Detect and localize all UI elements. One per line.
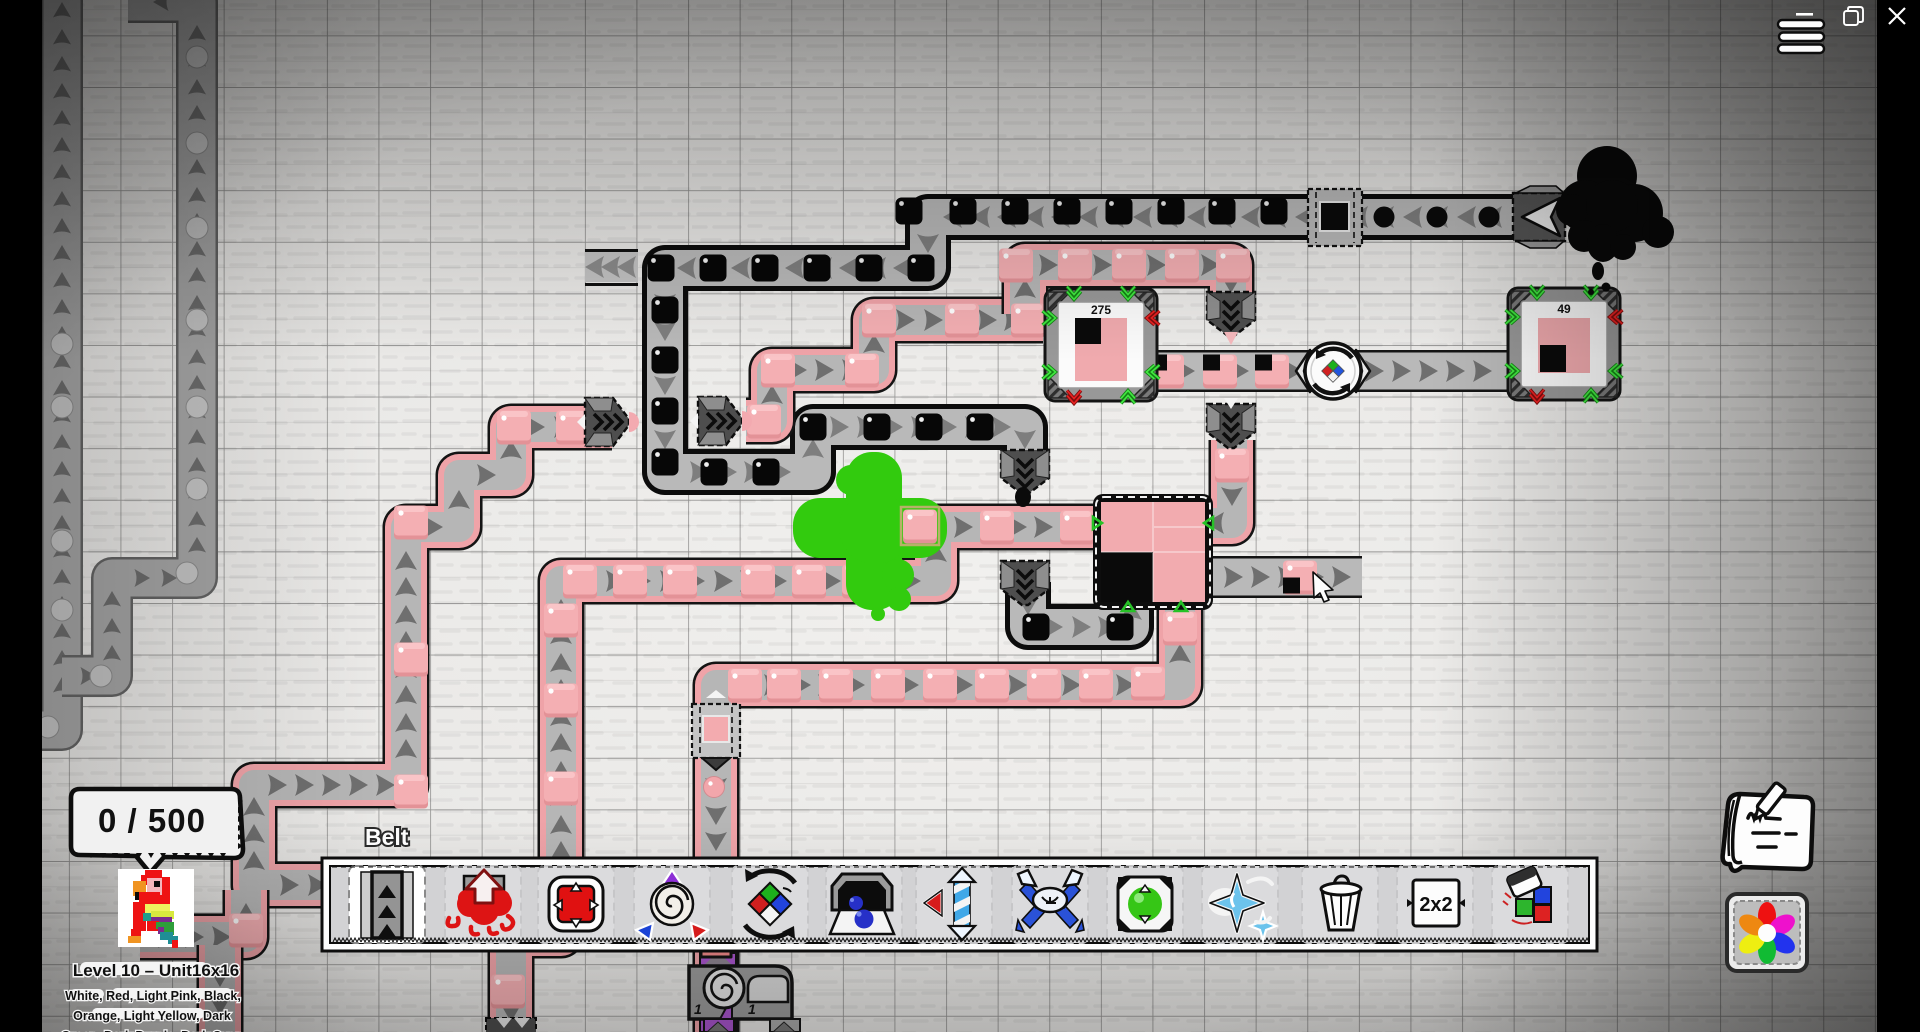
svg-text:Level 10 – Unit16x16: Level 10 – Unit16x16 [73, 961, 239, 980]
svg-text:2x2: 2x2 [1419, 894, 1452, 916]
svg-text:White, Red, Light Pink, Black,: White, Red, Light Pink, Black, [65, 989, 241, 1003]
svg-text:0 / 500: 0 / 500 [98, 802, 206, 839]
svg-text:Belt: Belt [365, 824, 409, 850]
svg-text:Orange, Light Yellow, Dark: Orange, Light Yellow, Dark [73, 1009, 231, 1023]
